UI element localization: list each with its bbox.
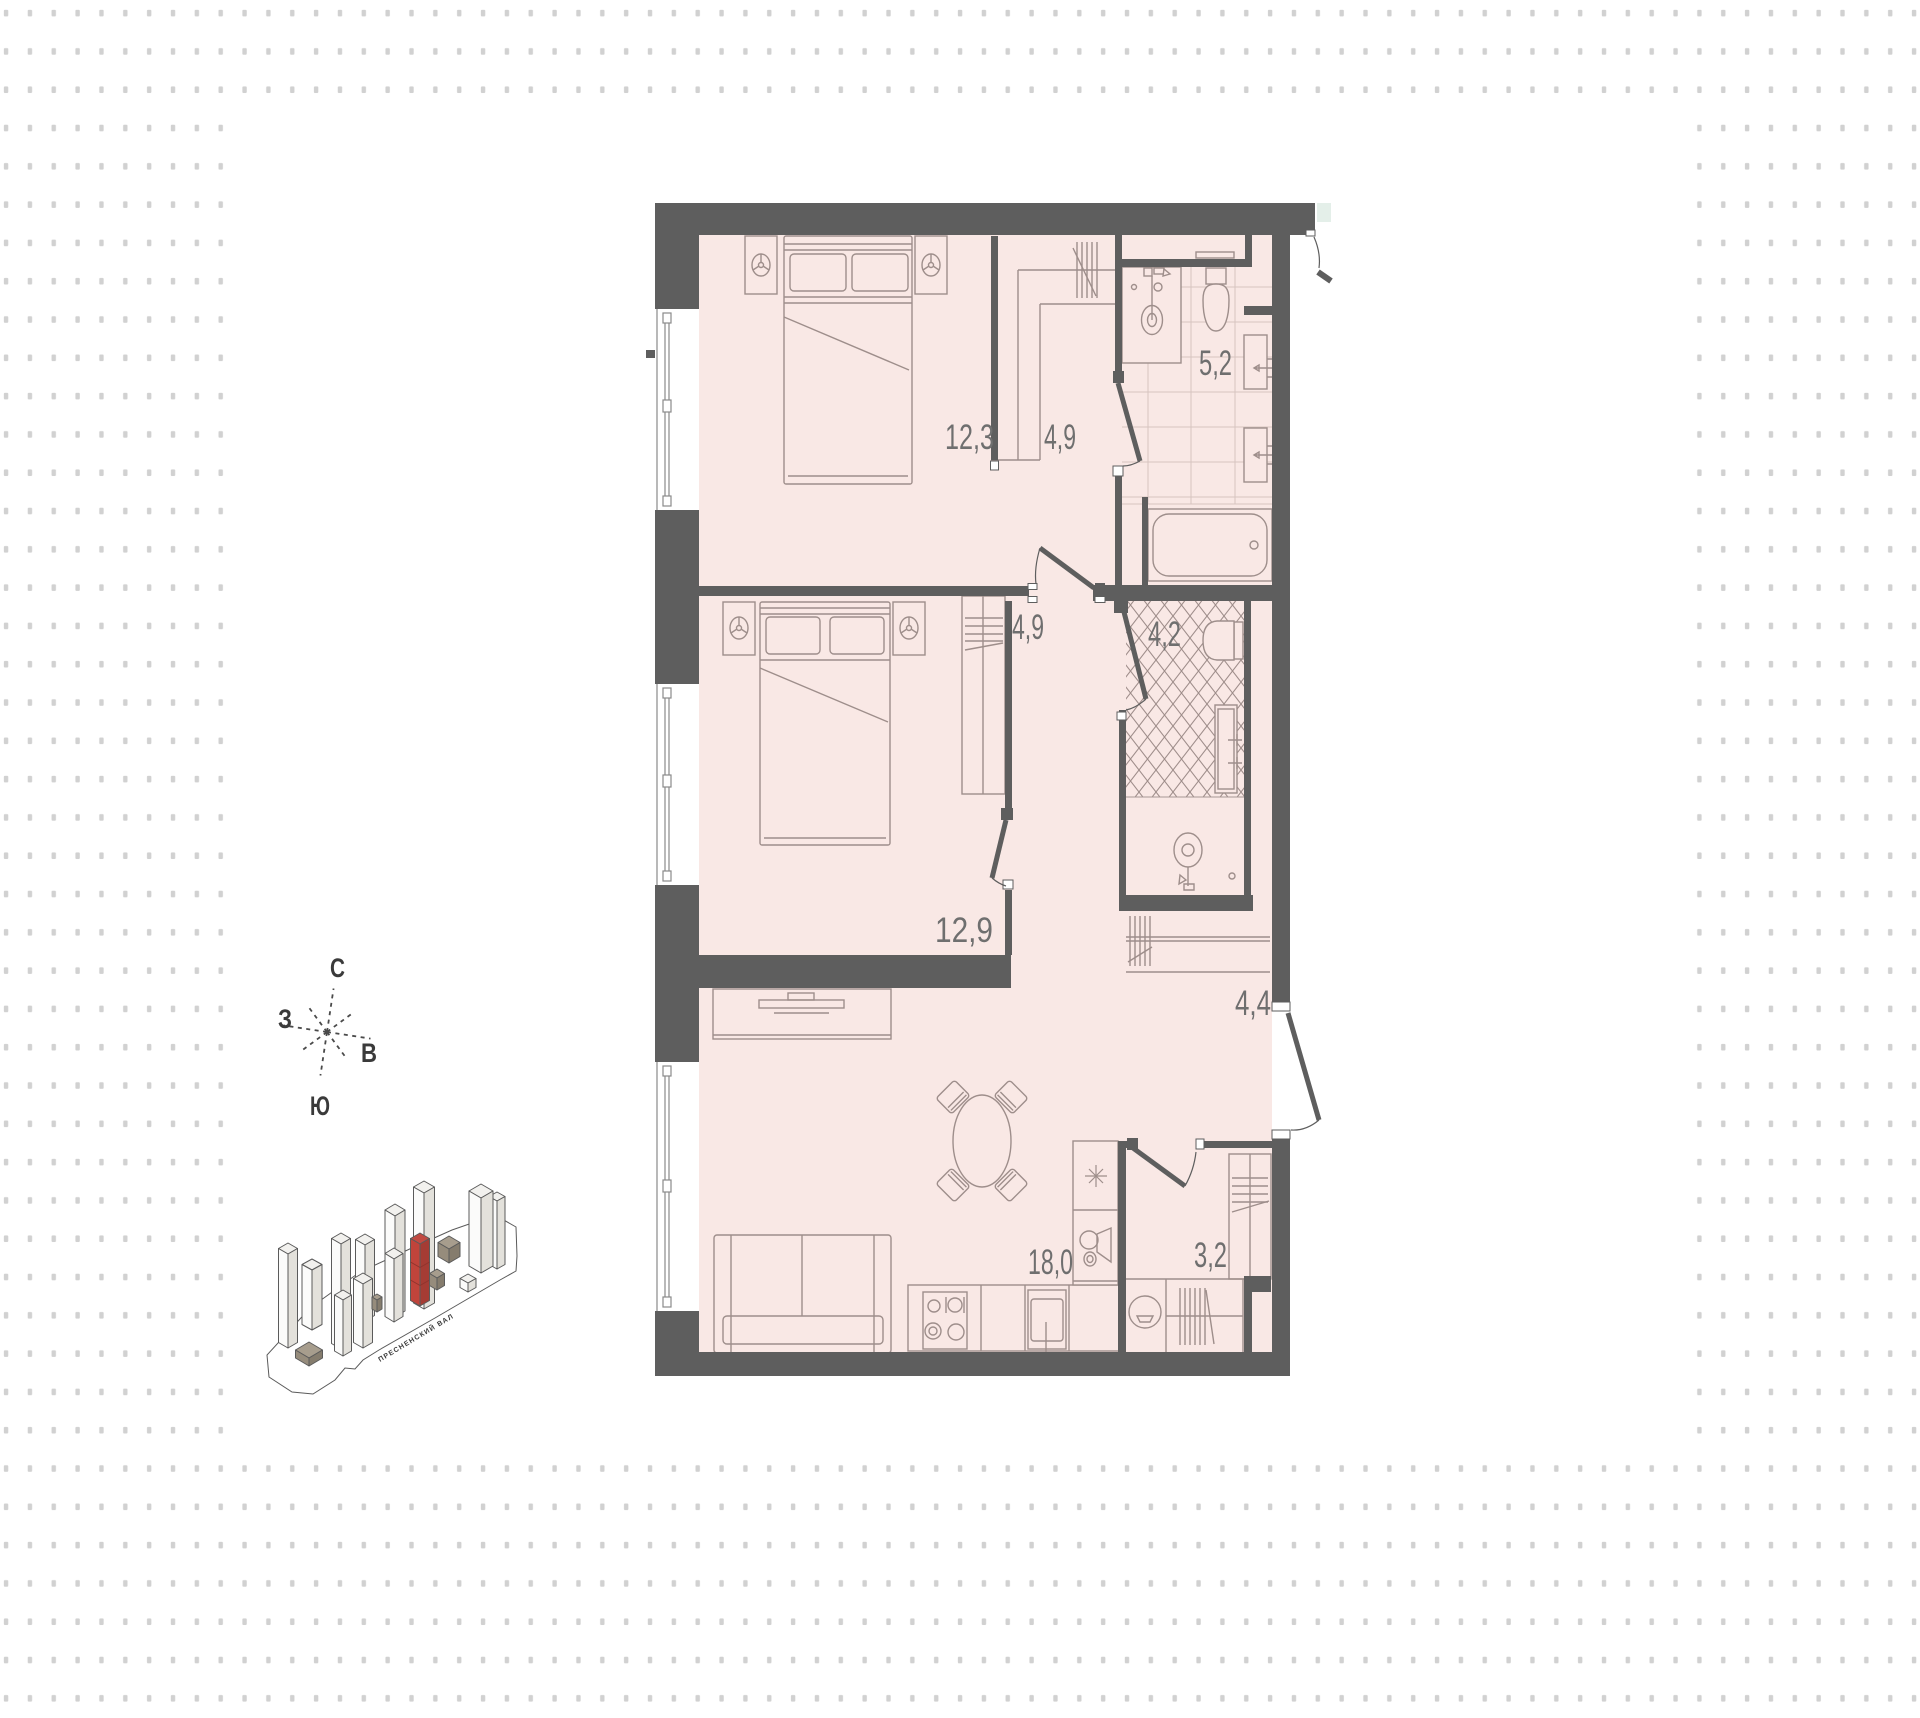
svg-text:3,2: 3,2	[1194, 1236, 1227, 1275]
svg-text:З: З	[278, 1004, 292, 1034]
svg-text:12,3: 12,3	[945, 418, 994, 457]
svg-text:12,9: 12,9	[935, 911, 993, 950]
svg-text:Ю: Ю	[310, 1091, 330, 1121]
svg-text:4,2: 4,2	[1148, 615, 1181, 654]
svg-text:5,2: 5,2	[1199, 344, 1232, 383]
svg-text:В: В	[361, 1038, 377, 1068]
svg-text:4,9: 4,9	[1044, 418, 1076, 457]
svg-text:4,4: 4,4	[1235, 984, 1271, 1023]
svg-text:С: С	[330, 953, 345, 983]
svg-text:18,0: 18,0	[1028, 1243, 1073, 1282]
svg-text:4,9: 4,9	[1012, 608, 1044, 647]
